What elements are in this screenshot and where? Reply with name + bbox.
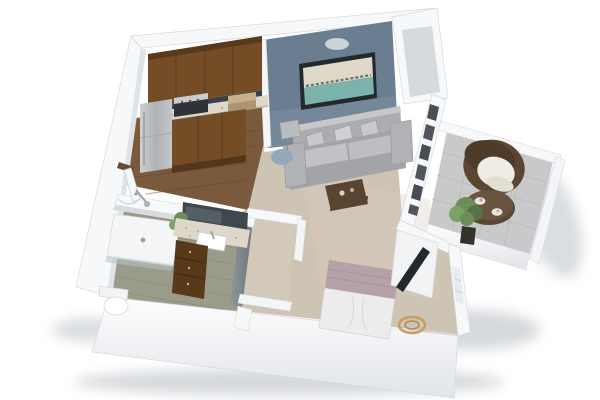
- plate: [492, 208, 503, 216]
- refrigerator: [140, 99, 172, 173]
- table-decor: [350, 188, 354, 192]
- table-decor: [339, 190, 344, 195]
- floorplan-svg: [0, 0, 600, 400]
- dessert: [497, 210, 500, 213]
- bed: [319, 260, 399, 339]
- door-knob: [135, 193, 138, 196]
- shower-drain: [141, 238, 146, 243]
- ceiling-light-glow: [325, 38, 349, 50]
- floorplan-render: [0, 0, 600, 400]
- lower-cabinets: [172, 109, 246, 173]
- sofa-arm-right: [390, 120, 413, 165]
- toilet-bowl: [104, 297, 128, 315]
- blue-pouf: [271, 149, 293, 165]
- vanity-drawers: [172, 240, 208, 299]
- dessert: [479, 198, 482, 201]
